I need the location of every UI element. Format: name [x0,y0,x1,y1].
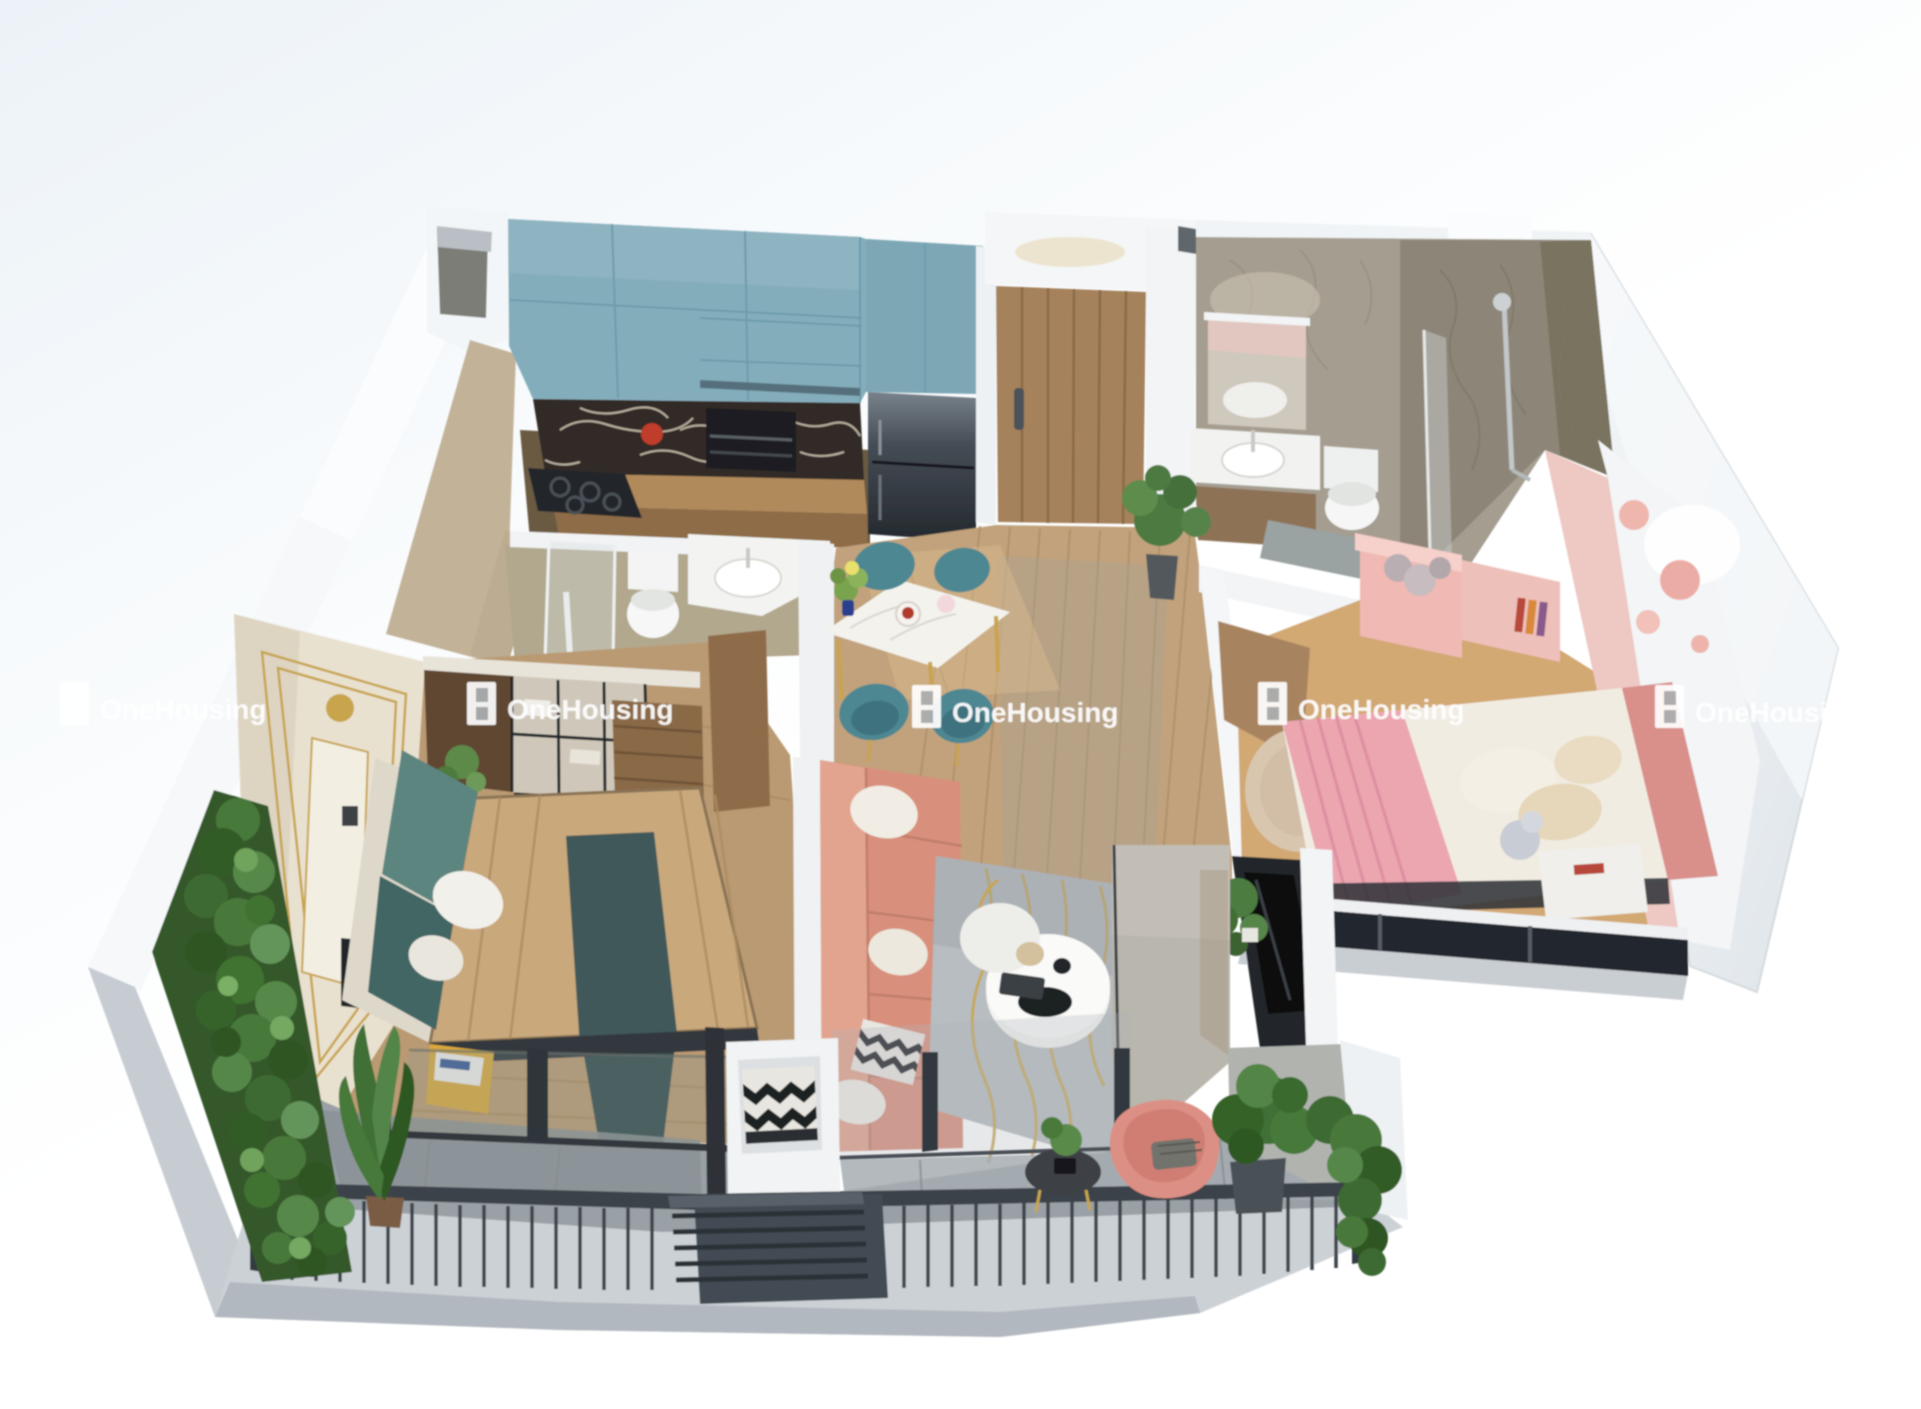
svg-text:OneHousing: OneHousing [952,697,1118,728]
svg-text:OneHousing: OneHousing [100,694,266,725]
svg-text:OneHousing: OneHousing [1298,694,1464,725]
svg-text:OneHousing: OneHousing [507,694,673,725]
svg-text:OneHousing: OneHousing [1695,697,1861,728]
